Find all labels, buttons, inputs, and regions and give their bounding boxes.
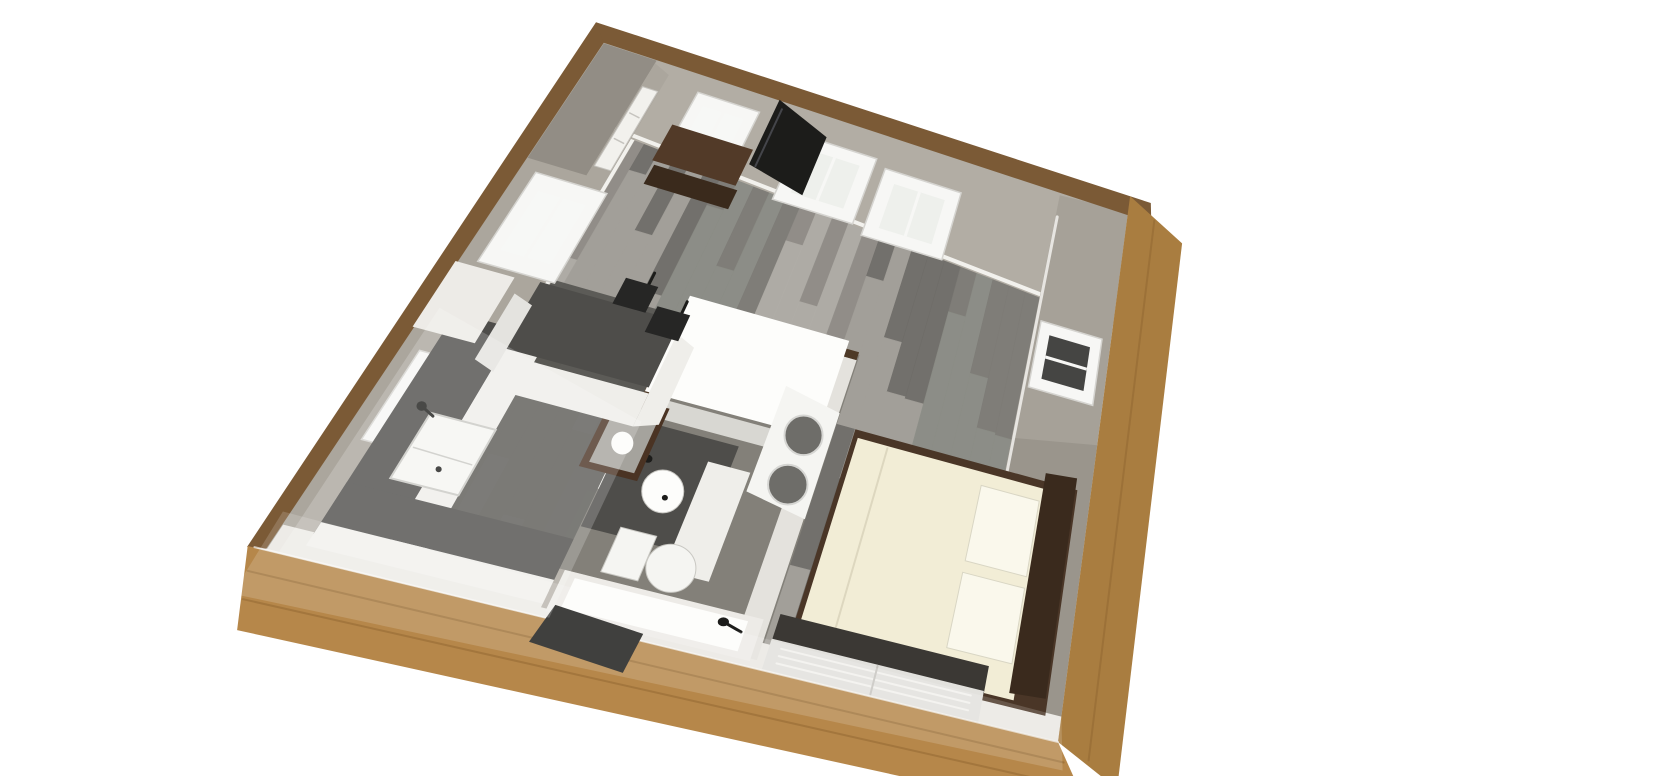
toilet-bowl (646, 544, 696, 592)
floorplan-svg[interactable] (0, 0, 1665, 776)
tub-faucet (718, 617, 729, 626)
render-viewport[interactable] (0, 0, 1665, 776)
vanity-sink (642, 470, 684, 513)
dryer-door (768, 465, 807, 505)
vanity-drain (662, 495, 668, 501)
washer-door (784, 415, 822, 455)
